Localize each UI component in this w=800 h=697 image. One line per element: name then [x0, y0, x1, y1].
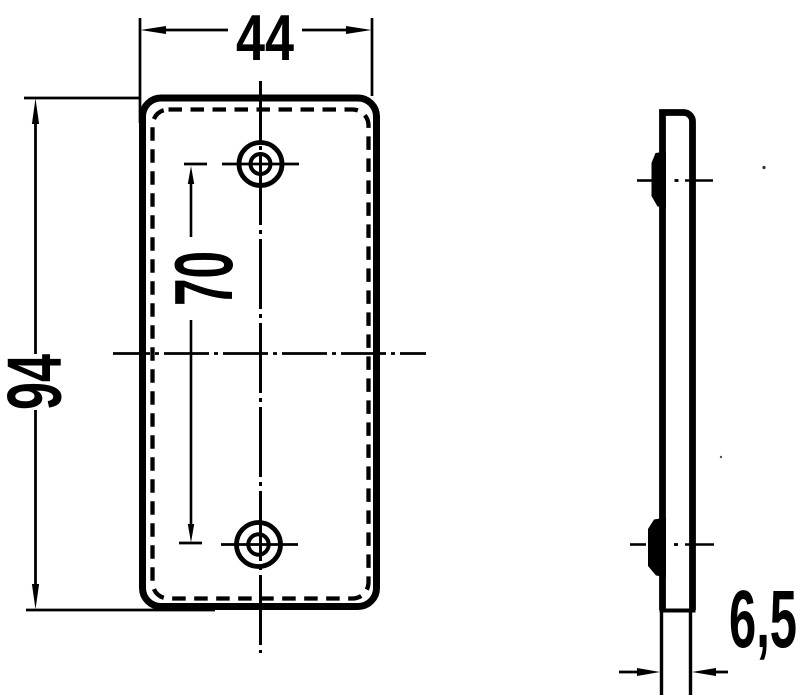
svg-text:44: 44 [236, 1, 294, 74]
svg-text:94: 94 [0, 354, 78, 410]
svg-text:6,5: 6,5 [729, 574, 797, 665]
svg-text:70: 70 [157, 251, 250, 306]
